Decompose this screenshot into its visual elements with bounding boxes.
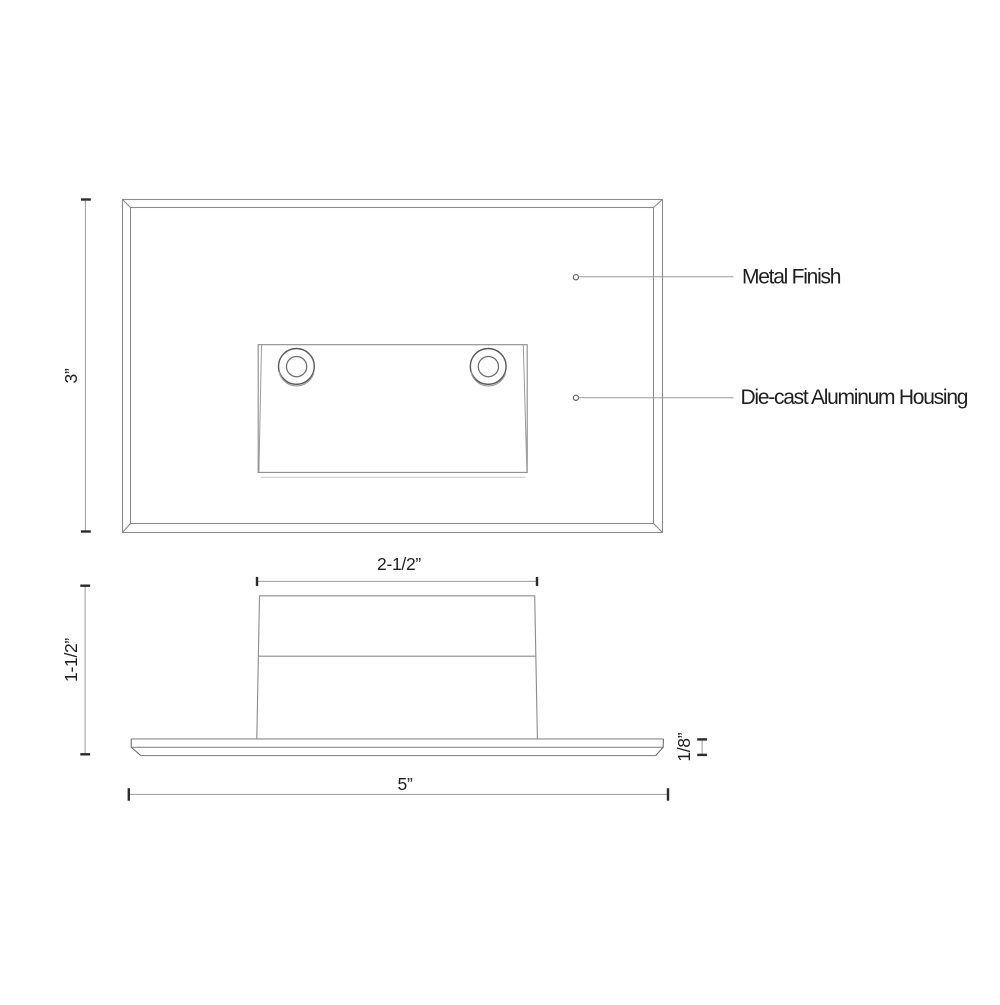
svg-text:1/8”: 1/8” — [674, 732, 694, 761]
svg-text:2-1/2”: 2-1/2” — [377, 554, 421, 574]
svg-text:3”: 3” — [61, 368, 81, 383]
svg-text:Die-cast Aluminum Housing: Die-cast Aluminum Housing — [741, 386, 968, 409]
svg-text:5”: 5” — [398, 774, 413, 794]
svg-text:1-1/2”: 1-1/2” — [61, 638, 81, 682]
svg-text:Metal Finish: Metal Finish — [742, 266, 841, 289]
